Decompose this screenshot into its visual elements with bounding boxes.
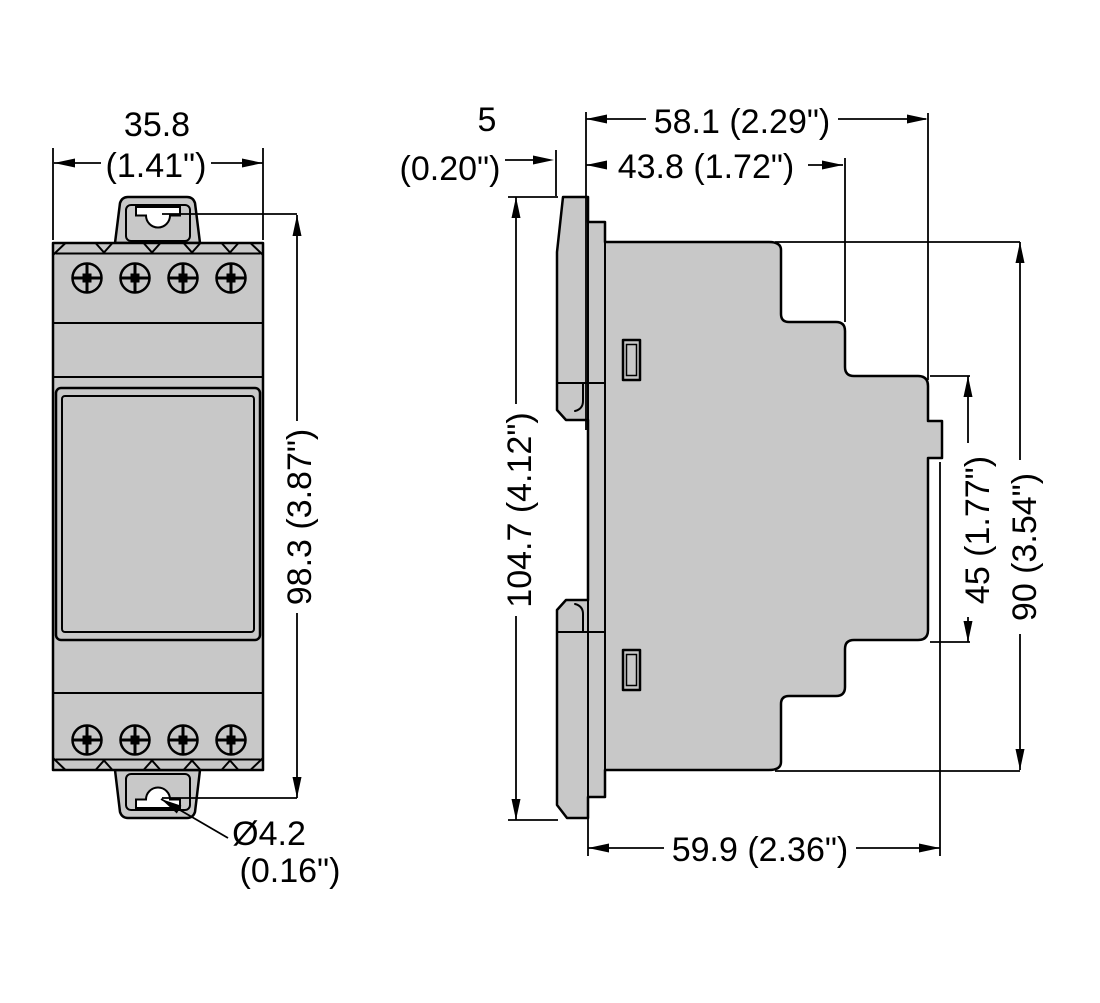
dim-side-depth-upper-label: 43.8 (1.72") (618, 148, 795, 186)
dim-side-height-front-label: 45 (1.77") (959, 456, 997, 604)
terminal-screw (169, 726, 198, 755)
terminal-screw (73, 726, 102, 755)
dim-front-hole-in: (0.16") (240, 852, 341, 890)
terminal-screw (121, 264, 150, 293)
dim-front-hole-mm: Ø4.2 (232, 815, 306, 853)
dim-side-tab-depth: 5 (0.20") (400, 101, 556, 196)
terminal-screw (73, 264, 102, 293)
terminal-screw (217, 264, 246, 293)
dim-side-tab-depth-mm: 5 (478, 101, 497, 139)
dim-side-depth-lower-label: 59.9 (2.36") (672, 831, 849, 869)
side-silhouette (557, 197, 942, 818)
terminal-screw (121, 726, 150, 755)
side-view (557, 197, 942, 818)
terminal-screw (217, 726, 246, 755)
technical-drawing: 35.8 (1.41") 98.3 (3.87") Ø4.2 (0.16") 5… (0, 0, 1100, 998)
dim-side-tab-depth-in: (0.20") (400, 150, 501, 188)
terminal-screw (169, 264, 198, 293)
drawing-page: 35.8 (1.41") 98.3 (3.87") Ø4.2 (0.16") 5… (0, 0, 1100, 998)
dim-side-height-total: 104.7 (4.12") (501, 197, 558, 820)
dim-front-height-label: 98.3 (3.87") (281, 429, 319, 606)
dim-side-height-body-label: 90 (3.54") (1006, 473, 1044, 621)
dim-side-height-total-label: 104.7 (4.12") (501, 412, 539, 607)
front-view (53, 197, 263, 818)
dim-front-width-mm: 35.8 (124, 106, 190, 144)
dim-side-depth-total-label: 58.1 (2.29") (654, 103, 831, 141)
dim-front-width-in: (1.41") (106, 147, 207, 185)
